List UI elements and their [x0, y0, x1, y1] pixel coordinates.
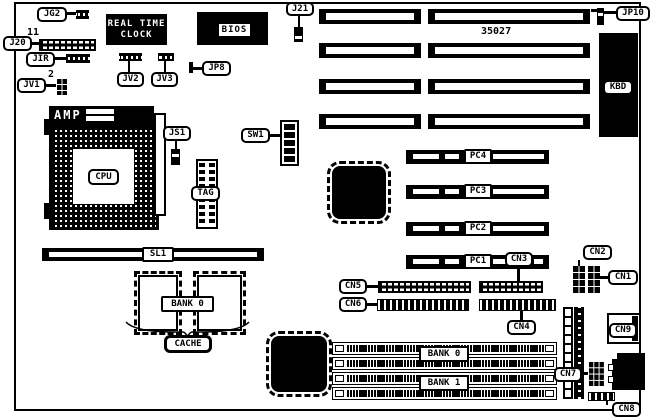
- cn4-text: CN4: [513, 323, 529, 332]
- io-controller-qfp: [271, 336, 327, 392]
- board-part-number: 35027: [481, 27, 511, 37]
- j21-pointer: [298, 16, 300, 27]
- isa-slot-stripe: [435, 47, 583, 54]
- simm-bank0-label: BANK 0: [419, 346, 469, 362]
- simm-bank1-text: BANK 1: [428, 379, 461, 388]
- pc3-text: PC3: [470, 187, 486, 196]
- jp8-label: JP8: [202, 61, 231, 76]
- cache-brace: [124, 320, 251, 336]
- pc1-label: PC1: [464, 254, 492, 269]
- cn7-connector: [588, 361, 604, 386]
- js1-label: JS1: [163, 126, 191, 141]
- isa-slot-stripe: [435, 13, 583, 20]
- jg2-pointer: [66, 12, 76, 15]
- cn9-label: CN9: [609, 323, 637, 338]
- js1-text: JS1: [169, 129, 185, 138]
- jir-pointer: [54, 57, 66, 60]
- pci-stripe: [534, 259, 543, 264]
- isa-slot-stripe: [326, 47, 414, 54]
- cn8-label: CN8: [612, 402, 641, 417]
- sw1-segment: [284, 132, 295, 138]
- cn1-label: CN1: [608, 270, 638, 285]
- j20-pointer: [31, 42, 39, 45]
- pci-stripe: [493, 189, 544, 194]
- jg2-label: JG2: [37, 7, 67, 22]
- cn6-pointer: [367, 303, 377, 306]
- pc2-label: PC2: [464, 221, 492, 236]
- sw1-pointer: [270, 134, 281, 137]
- cache-bank-text: BANK 0: [171, 300, 204, 309]
- bios-label: BIOS: [218, 23, 251, 37]
- cache-label: CACHE: [165, 336, 211, 352]
- rear-port-connector: [612, 359, 645, 390]
- cn6-label: CN6: [339, 297, 367, 312]
- jv3-text: JV3: [156, 75, 172, 84]
- jv2-connector: [119, 53, 142, 61]
- cn6-header-right: [479, 299, 556, 311]
- simm-latch: [335, 375, 344, 382]
- pci-stripe: [413, 226, 439, 231]
- j21-label: J21: [286, 2, 314, 16]
- sw1-text: SW1: [247, 131, 263, 140]
- simm-bank0-text: BANK 0: [428, 350, 461, 359]
- isa-slot-4-right: [428, 114, 590, 129]
- cn8-connector: [588, 392, 615, 401]
- jv3-label: JV3: [151, 72, 178, 87]
- amp-stripe: [86, 116, 114, 121]
- isa-slot-stripe: [326, 83, 414, 90]
- j20-header: [39, 39, 96, 51]
- jv1-label: JV1: [17, 78, 46, 93]
- pci-stripe: [493, 154, 544, 159]
- cn6-header-left: [377, 299, 469, 311]
- pc3-label: PC3: [464, 184, 492, 199]
- simm-latch: [335, 390, 344, 397]
- jp8-text: JP8: [208, 64, 224, 73]
- tag-text: TAG: [197, 189, 213, 198]
- jg2-text: JG2: [44, 10, 60, 19]
- jg2-connector: [76, 10, 89, 19]
- jv1-pin1-annotation: 2: [48, 70, 54, 80]
- isa-slot-2-left: [319, 43, 421, 58]
- rtc-line1: REAL TIME: [108, 19, 166, 30]
- isa-slot-stripe: [435, 118, 583, 125]
- jv1-pointer: [45, 84, 56, 87]
- jv3-connector: [158, 53, 174, 61]
- cn5-label: CN5: [339, 279, 367, 294]
- pci-stripe: [445, 259, 459, 264]
- cn2-text: CN2: [589, 248, 605, 257]
- sw1-segment: [284, 148, 295, 154]
- cn5-text: CN5: [345, 282, 361, 291]
- cn9-text: CN9: [615, 326, 631, 335]
- simm-latch: [545, 375, 554, 382]
- cn5-pointer: [367, 285, 378, 288]
- cn2-connector: [572, 265, 585, 293]
- jp10-label: JP10: [616, 6, 650, 21]
- isa-slot-stripe: [326, 13, 414, 20]
- chipset-qfp: [332, 166, 386, 219]
- simm-contacts: [346, 390, 544, 397]
- cn2-pointer: [578, 260, 580, 266]
- sl1-label: SL1: [142, 247, 174, 262]
- pc2-text: PC2: [470, 224, 486, 233]
- cn6-text: CN6: [345, 300, 361, 309]
- cache-bank-label: BANK 0: [161, 296, 214, 312]
- j21-connector-tick: [295, 36, 302, 39]
- jp10-pointer: [604, 11, 616, 14]
- sl1-text: SL1: [150, 250, 166, 259]
- pci-stripe: [413, 189, 439, 194]
- cn4-label: CN4: [507, 320, 536, 335]
- amp-stripe: [86, 109, 114, 114]
- isa-slot-stripe: [326, 118, 414, 125]
- sw1-segment: [284, 156, 295, 162]
- motherboard-diagram: JG2 11 J20 JIR 2 JV1 REAL TIME CLOCK JV2…: [0, 0, 652, 420]
- cn2-label: CN2: [583, 245, 612, 260]
- cn1-text: CN1: [615, 273, 631, 282]
- sw1-segment: [284, 140, 295, 146]
- kbd-text: KBD: [610, 83, 626, 92]
- pci-stripe: [445, 189, 459, 194]
- jir-connector: [66, 54, 90, 63]
- cn8-text: CN8: [618, 405, 634, 414]
- cn7-pointer: [582, 372, 588, 375]
- jp10-connector: [597, 8, 604, 25]
- isa-slot-4-left: [319, 114, 421, 129]
- pci-stripe: [413, 259, 439, 264]
- pci-stripe: [493, 226, 544, 231]
- amp-text: AMP: [54, 109, 82, 121]
- pci-stripe: [445, 226, 459, 231]
- isa-slot-2-right: [428, 43, 590, 58]
- jv1-text: JV1: [23, 81, 39, 90]
- power-connector: [563, 307, 584, 399]
- power-connector-pins-right: [574, 307, 584, 399]
- rear-port-pin: [608, 376, 614, 383]
- cache-text: CACHE: [174, 340, 201, 349]
- j21-text: J21: [292, 5, 308, 14]
- rtc-chip: REAL TIME CLOCK: [106, 14, 167, 45]
- pc4-text: PC4: [470, 152, 486, 161]
- jv2-text: JV2: [122, 75, 138, 84]
- js1-connector-tick: [172, 154, 179, 157]
- j20-label: J20: [3, 36, 32, 51]
- j20-text: J20: [9, 39, 25, 48]
- sw1-segment: [284, 124, 295, 130]
- cn3-pointer: [517, 267, 520, 282]
- simm-bank1-label: BANK 1: [419, 375, 469, 391]
- simm-latch: [335, 345, 344, 352]
- jv2-pointer: [128, 61, 130, 72]
- rtc-line2: CLOCK: [120, 30, 152, 41]
- js1-pointer: [175, 141, 177, 149]
- jp10-connector-tick: [598, 13, 603, 16]
- jv3-pointer: [164, 61, 166, 72]
- isa-slot-1-right: [428, 9, 590, 24]
- cn8-pointer: [606, 400, 608, 405]
- jv2-label: JV2: [117, 72, 144, 87]
- cn3-label: CN3: [505, 252, 533, 267]
- tag-label: TAG: [191, 186, 220, 201]
- amp-socket-bar: AMP: [49, 106, 154, 124]
- cn5-header-right: [479, 281, 543, 293]
- isa-slot-stripe: [435, 83, 583, 90]
- jir-label: JIR: [26, 52, 55, 67]
- jv1-connector: [56, 78, 67, 95]
- cn5-header-left: [378, 281, 471, 293]
- cpu-label: CPU: [88, 169, 119, 185]
- jir-text: JIR: [32, 55, 48, 64]
- sw1-dip-switch: [280, 120, 299, 166]
- isa-slot-3-right: [428, 79, 590, 94]
- cn1-pointer: [598, 276, 608, 279]
- pci-stripe: [445, 154, 459, 159]
- cn7-text: CN7: [560, 370, 576, 379]
- pc1-text: PC1: [470, 257, 486, 266]
- cn1-connector: [587, 265, 600, 293]
- isa-slot-1-left: [319, 9, 421, 24]
- simm-latch: [545, 390, 554, 397]
- j21-connector: [294, 27, 303, 42]
- js1-connector: [171, 149, 180, 165]
- power-connector-pins-left: [563, 307, 573, 399]
- cn3-text: CN3: [511, 255, 527, 264]
- simm-latch: [335, 360, 344, 367]
- cn7-label: CN7: [554, 367, 582, 382]
- simm-latch: [545, 345, 554, 352]
- sw1-label: SW1: [241, 128, 270, 143]
- jp10-edge-tick: [591, 9, 597, 12]
- kbd-label: KBD: [603, 80, 633, 95]
- simm-latch: [545, 360, 554, 367]
- isa-slot-3-left: [319, 79, 421, 94]
- jp8-pointer: [193, 67, 202, 70]
- rear-port-pin: [608, 364, 614, 371]
- jp10-text: JP10: [622, 9, 644, 18]
- pc4-label: PC4: [464, 149, 492, 164]
- cpu-text: CPU: [95, 173, 111, 182]
- pci-stripe: [413, 154, 439, 159]
